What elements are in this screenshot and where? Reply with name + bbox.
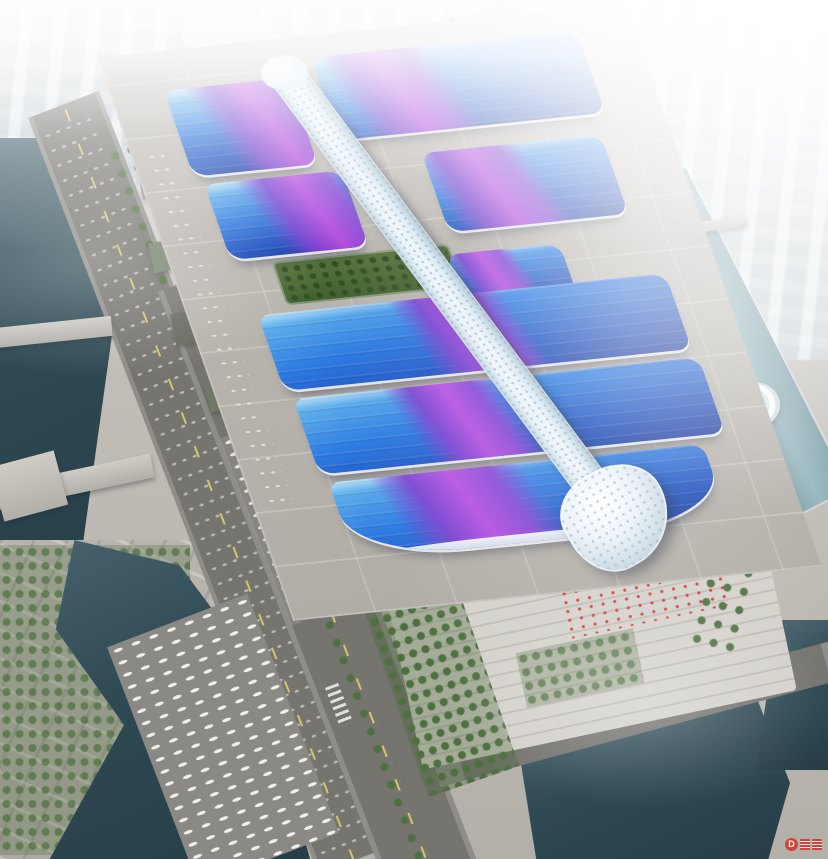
roof-ribbon [421, 135, 608, 233]
aerial-rendering: D [0, 0, 828, 859]
watermark-glyph-2 [812, 839, 822, 850]
watermark-glyph-1 [800, 839, 810, 850]
watermark-logo: D [785, 838, 822, 851]
watermark-d-icon: D [785, 838, 798, 851]
exhibition-hall-row2-west [204, 170, 368, 260]
exhibition-complex [165, 51, 754, 559]
